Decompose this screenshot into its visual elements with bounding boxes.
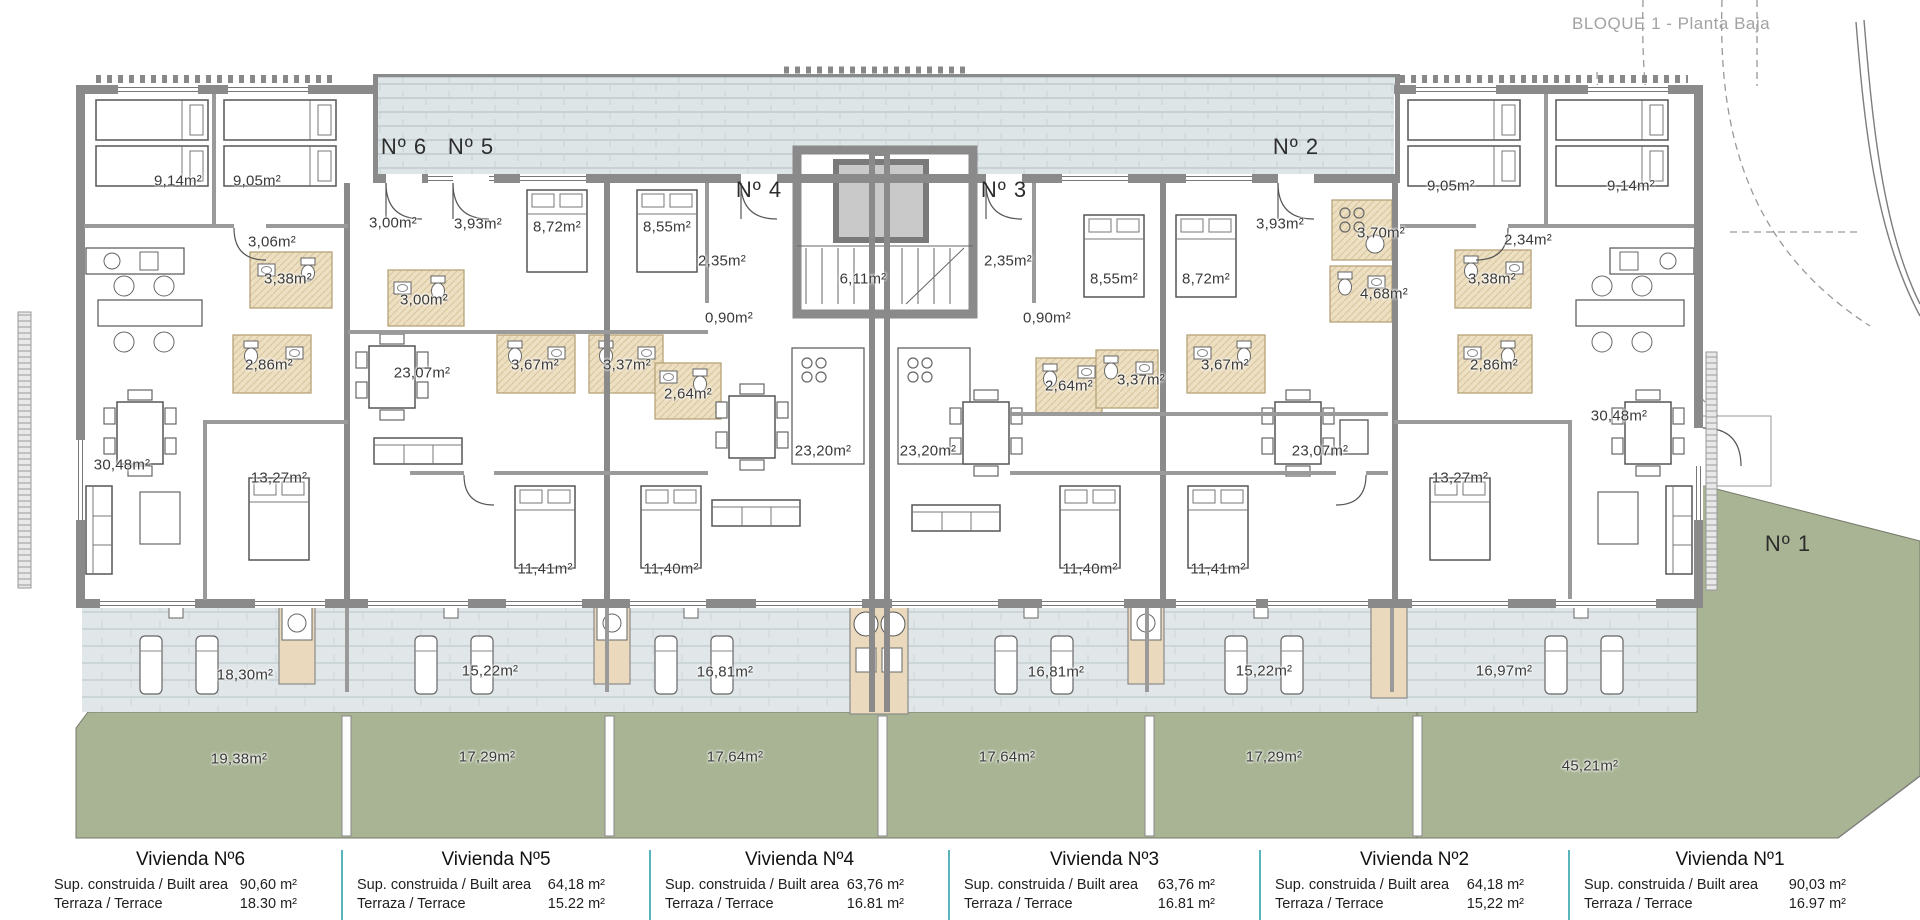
built-area-label: Sup. construida / Built area <box>54 876 228 895</box>
area-label: 8,55m² <box>1090 271 1138 288</box>
site-boundary <box>1856 20 1920 316</box>
area-label: 3,00m² <box>369 215 417 232</box>
terrace-value: 15,22 m² <box>1467 895 1524 914</box>
terrace-label: Terraza / Terrace <box>665 895 774 914</box>
table-column-vivienda-4: Vivienda Nº4 Sup. construida / Built are… <box>651 846 948 920</box>
area-label: 9,14m² <box>1607 178 1655 195</box>
area-label: 23,20m² <box>900 443 956 460</box>
area-label: 23,20m² <box>795 443 851 460</box>
built-area-value: 90,60 m² <box>240 876 297 895</box>
table-row: Sup. construida / Built area 63,76 m² <box>950 876 1259 895</box>
area-label: 9,05m² <box>1427 178 1475 195</box>
area-label: 11,40m² <box>643 561 698 578</box>
table-column-vivienda-6: Vivienda Nº6 Sup. construida / Built are… <box>40 846 341 920</box>
table-column-vivienda-3: Vivienda Nº3 Sup. construida / Built are… <box>950 846 1259 920</box>
area-label: 30,48m² <box>1591 408 1647 425</box>
terrace-label: Terraza / Terrace <box>1584 895 1693 914</box>
terrace-label: Terraza / Terrace <box>1275 895 1384 914</box>
area-label: 16,97m² <box>1476 663 1532 680</box>
area-label: 45,21m² <box>1562 758 1618 775</box>
table-row: Terraza / Terrace 16.81 m² <box>651 895 948 914</box>
elevator <box>836 162 926 240</box>
terrace-label: Terraza / Terrace <box>54 895 163 914</box>
terrace-value: 16.97 m² <box>1789 895 1846 914</box>
area-label: 3,06m² <box>248 234 296 251</box>
unit-marker: Nº 1 <box>1765 531 1811 557</box>
terrace-value: 15.22 m² <box>548 895 605 914</box>
area-label: 0,90m² <box>705 310 753 327</box>
built-area-label: Sup. construida / Built area <box>1584 876 1758 895</box>
table-column-title: Vivienda Nº1 <box>1570 846 1890 876</box>
area-label: 3,00m² <box>400 292 448 309</box>
area-label: 4,68m² <box>1360 286 1408 303</box>
unit-marker: Nº 3 <box>981 177 1027 203</box>
area-label: 6,11m² <box>840 271 887 288</box>
table-row: Sup. construida / Built area 64,18 m² <box>1261 876 1568 895</box>
area-label: 3,37m² <box>603 357 651 374</box>
area-label: 17,29m² <box>459 749 515 766</box>
area-label: 2,86m² <box>245 357 293 374</box>
area-label: 18,30m² <box>217 667 273 684</box>
area-label: 19,38m² <box>211 751 267 768</box>
floorplan-graphic <box>0 0 1920 920</box>
terrace-label: Terraza / Terrace <box>357 895 466 914</box>
area-label: 16,81m² <box>697 664 753 681</box>
table-column-title: Vivienda Nº4 <box>651 846 948 876</box>
area-label: 11,40m² <box>1062 561 1117 578</box>
area-label: 2,86m² <box>1470 357 1518 374</box>
table-row: Terraza / Terrace 18.30 m² <box>40 895 341 914</box>
area-label: 30,48m² <box>94 457 150 474</box>
area-label: 17,29m² <box>1246 749 1302 766</box>
table-row: Sup. construida / Built area 90,60 m² <box>40 876 341 895</box>
table-column-title: Vivienda Nº6 <box>40 846 341 876</box>
area-label: 2,35m² <box>698 253 746 270</box>
unit-marker: Nº 6 <box>381 134 427 160</box>
built-area-value: 90,03 m² <box>1789 876 1846 895</box>
table-column-title: Vivienda Nº5 <box>343 846 649 876</box>
built-area-value: 64,18 m² <box>548 876 605 895</box>
area-label: 2,64m² <box>664 386 712 403</box>
area-label: 13,27m² <box>251 470 307 487</box>
built-area-label: Sup. construida / Built area <box>1275 876 1449 895</box>
built-area-value: 63,76 m² <box>1158 876 1215 895</box>
area-label: 2,35m² <box>984 253 1032 270</box>
table-row: Sup. construida / Built area 64,18 m² <box>343 876 649 895</box>
area-label: 9,05m² <box>233 173 281 190</box>
table-row: Terraza / Terrace 16.81 m² <box>950 895 1259 914</box>
area-label: 3,93m² <box>454 216 502 233</box>
area-label: 16,81m² <box>1028 664 1084 681</box>
garden-strip <box>76 712 1417 838</box>
area-label: 3,67m² <box>1201 357 1249 374</box>
area-label: 23,07m² <box>394 365 450 382</box>
area-label: 2,64m² <box>1045 378 1093 395</box>
unit-marker: Nº 4 <box>736 177 782 203</box>
unit-marker: Nº 5 <box>448 134 494 160</box>
area-label: 11,41m² <box>1190 561 1245 578</box>
area-label: 13,27m² <box>1432 470 1488 487</box>
table-row: Sup. construida / Built area 63,76 m² <box>651 876 948 895</box>
area-label: 23,07m² <box>1292 443 1348 460</box>
area-label: 3,93m² <box>1256 216 1304 233</box>
area-label: 8,55m² <box>643 219 691 236</box>
terrace-value: 16.81 m² <box>1158 895 1215 914</box>
built-area-label: Sup. construida / Built area <box>964 876 1138 895</box>
table-column-title: Vivienda Nº3 <box>950 846 1259 876</box>
area-label: 3,67m² <box>511 357 559 374</box>
terrace-value: 18.30 m² <box>240 895 297 914</box>
left-boundary-band <box>18 312 31 588</box>
area-label: 3,37m² <box>1117 372 1165 389</box>
plan-title: BLOQUE 1 - Planta Baja <box>1572 14 1770 34</box>
area-label: 17,64m² <box>707 749 763 766</box>
built-area-value: 64,18 m² <box>1467 876 1524 895</box>
table-row: Terraza / Terrace 15.22 m² <box>343 895 649 914</box>
unit-marker: Nº 2 <box>1273 134 1319 160</box>
table-row: Terraza / Terrace 16.97 m² <box>1570 895 1890 914</box>
built-area-label: Sup. construida / Built area <box>357 876 531 895</box>
area-label: 15,22m² <box>462 663 518 680</box>
area-label: 3,38m² <box>264 271 312 288</box>
table-column-vivienda-1: Vivienda Nº1 Sup. construida / Built are… <box>1570 846 1890 920</box>
area-label: 3,38m² <box>1468 271 1516 288</box>
table-column-vivienda-2: Vivienda Nº2 Sup. construida / Built are… <box>1261 846 1568 920</box>
built-area-value: 63,76 m² <box>847 876 904 895</box>
area-label: 11,41m² <box>517 561 572 578</box>
area-label: 8,72m² <box>533 219 581 236</box>
area-label: 17,64m² <box>979 749 1035 766</box>
area-label: 8,72m² <box>1182 271 1230 288</box>
area-label: 3,70m² <box>1357 225 1405 242</box>
table-column-title: Vivienda Nº2 <box>1261 846 1568 876</box>
area-label: 0,90m² <box>1023 310 1071 327</box>
terrace-label: Terraza / Terrace <box>964 895 1073 914</box>
area-label: 15,22m² <box>1236 663 1292 680</box>
right-boundary-band <box>1706 352 1717 590</box>
table-column-vivienda-5: Vivienda Nº5 Sup. construida / Built are… <box>343 846 649 920</box>
built-area-label: Sup. construida / Built area <box>665 876 839 895</box>
area-label: 2,34m² <box>1504 232 1552 249</box>
area-label: 9,14m² <box>154 173 202 190</box>
table-row: Sup. construida / Built area 90,03 m² <box>1570 876 1890 895</box>
terrace-value: 16.81 m² <box>847 895 904 914</box>
table-row: Terraza / Terrace 15,22 m² <box>1261 895 1568 914</box>
